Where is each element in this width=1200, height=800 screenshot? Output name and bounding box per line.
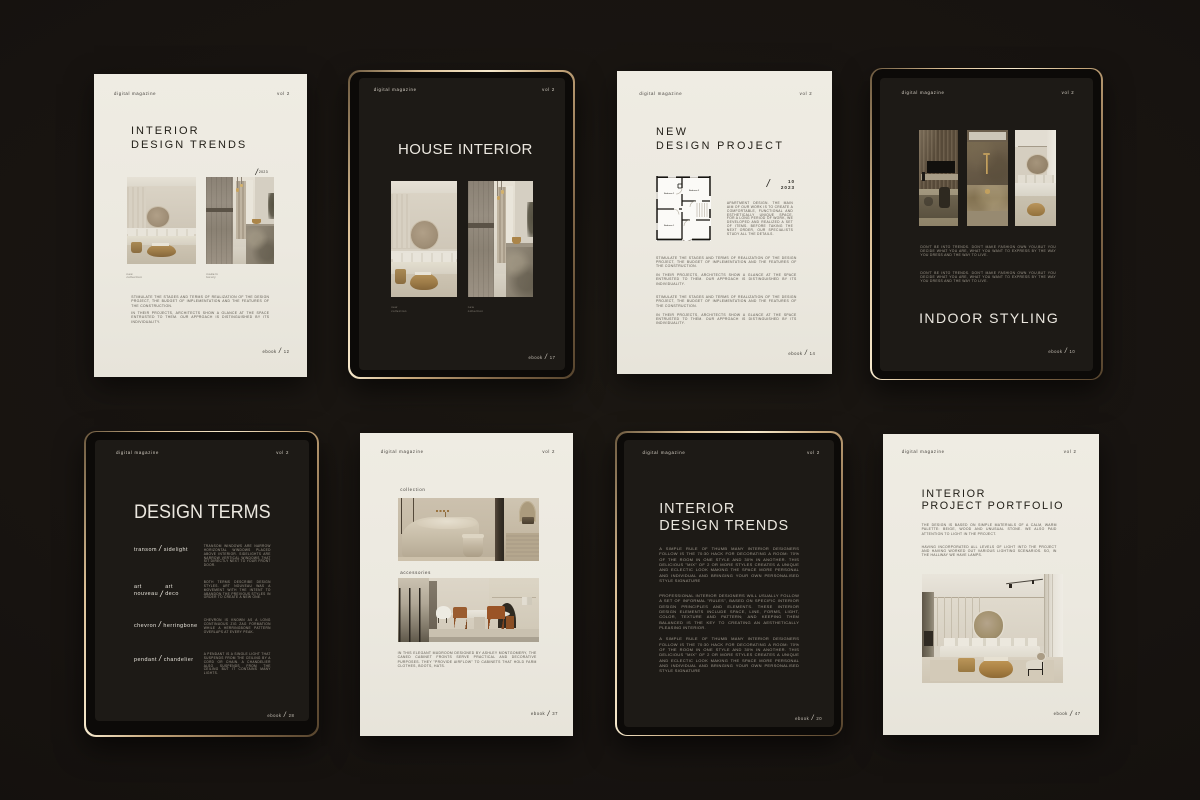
svg-text:Bedroom 2: Bedroom 2 — [664, 192, 675, 195]
svg-text:Bedroom 1: Bedroom 1 — [664, 224, 675, 227]
svg-text:Bedroom 3: Bedroom 3 — [689, 189, 700, 192]
